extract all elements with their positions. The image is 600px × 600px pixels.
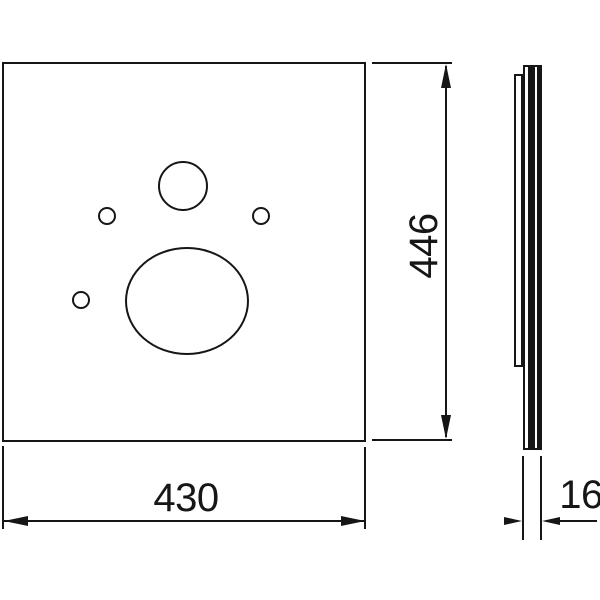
- height-dimension-label: 446: [404, 146, 444, 346]
- depth-dimension-label: 16: [531, 475, 600, 515]
- width-arrow-right-icon: [341, 516, 365, 526]
- technical-drawing-canvas: 430 446 16: [0, 0, 600, 600]
- side-view-plate-profile: [523, 65, 542, 450]
- height-arrow-up-icon: [441, 64, 451, 88]
- flush-pipe-hole: [158, 161, 208, 211]
- depth-arrow-left-icon: [504, 517, 522, 525]
- height-extension-line-bottom: [372, 439, 452, 441]
- depth-dimension-line-tail: [558, 520, 597, 522]
- width-dimension-line: [4, 520, 365, 522]
- depth-extension-line-left: [522, 456, 524, 540]
- front-view-panel: [2, 62, 366, 442]
- height-arrow-down-icon: [441, 415, 451, 439]
- mounting-hole-upper-right: [252, 207, 270, 225]
- drain-pipe-hole: [125, 247, 249, 355]
- side-view-rear-bracket: [514, 74, 523, 367]
- width-dimension-label: 430: [86, 478, 286, 518]
- mounting-hole-lower-left: [72, 291, 90, 309]
- side-view-layer-stripe-thin: [537, 67, 540, 448]
- height-extension-line-top: [372, 62, 452, 64]
- side-view-layer-stripe-thick: [528, 67, 535, 448]
- width-arrow-left-icon: [4, 516, 28, 526]
- mounting-hole-upper-left: [98, 207, 116, 225]
